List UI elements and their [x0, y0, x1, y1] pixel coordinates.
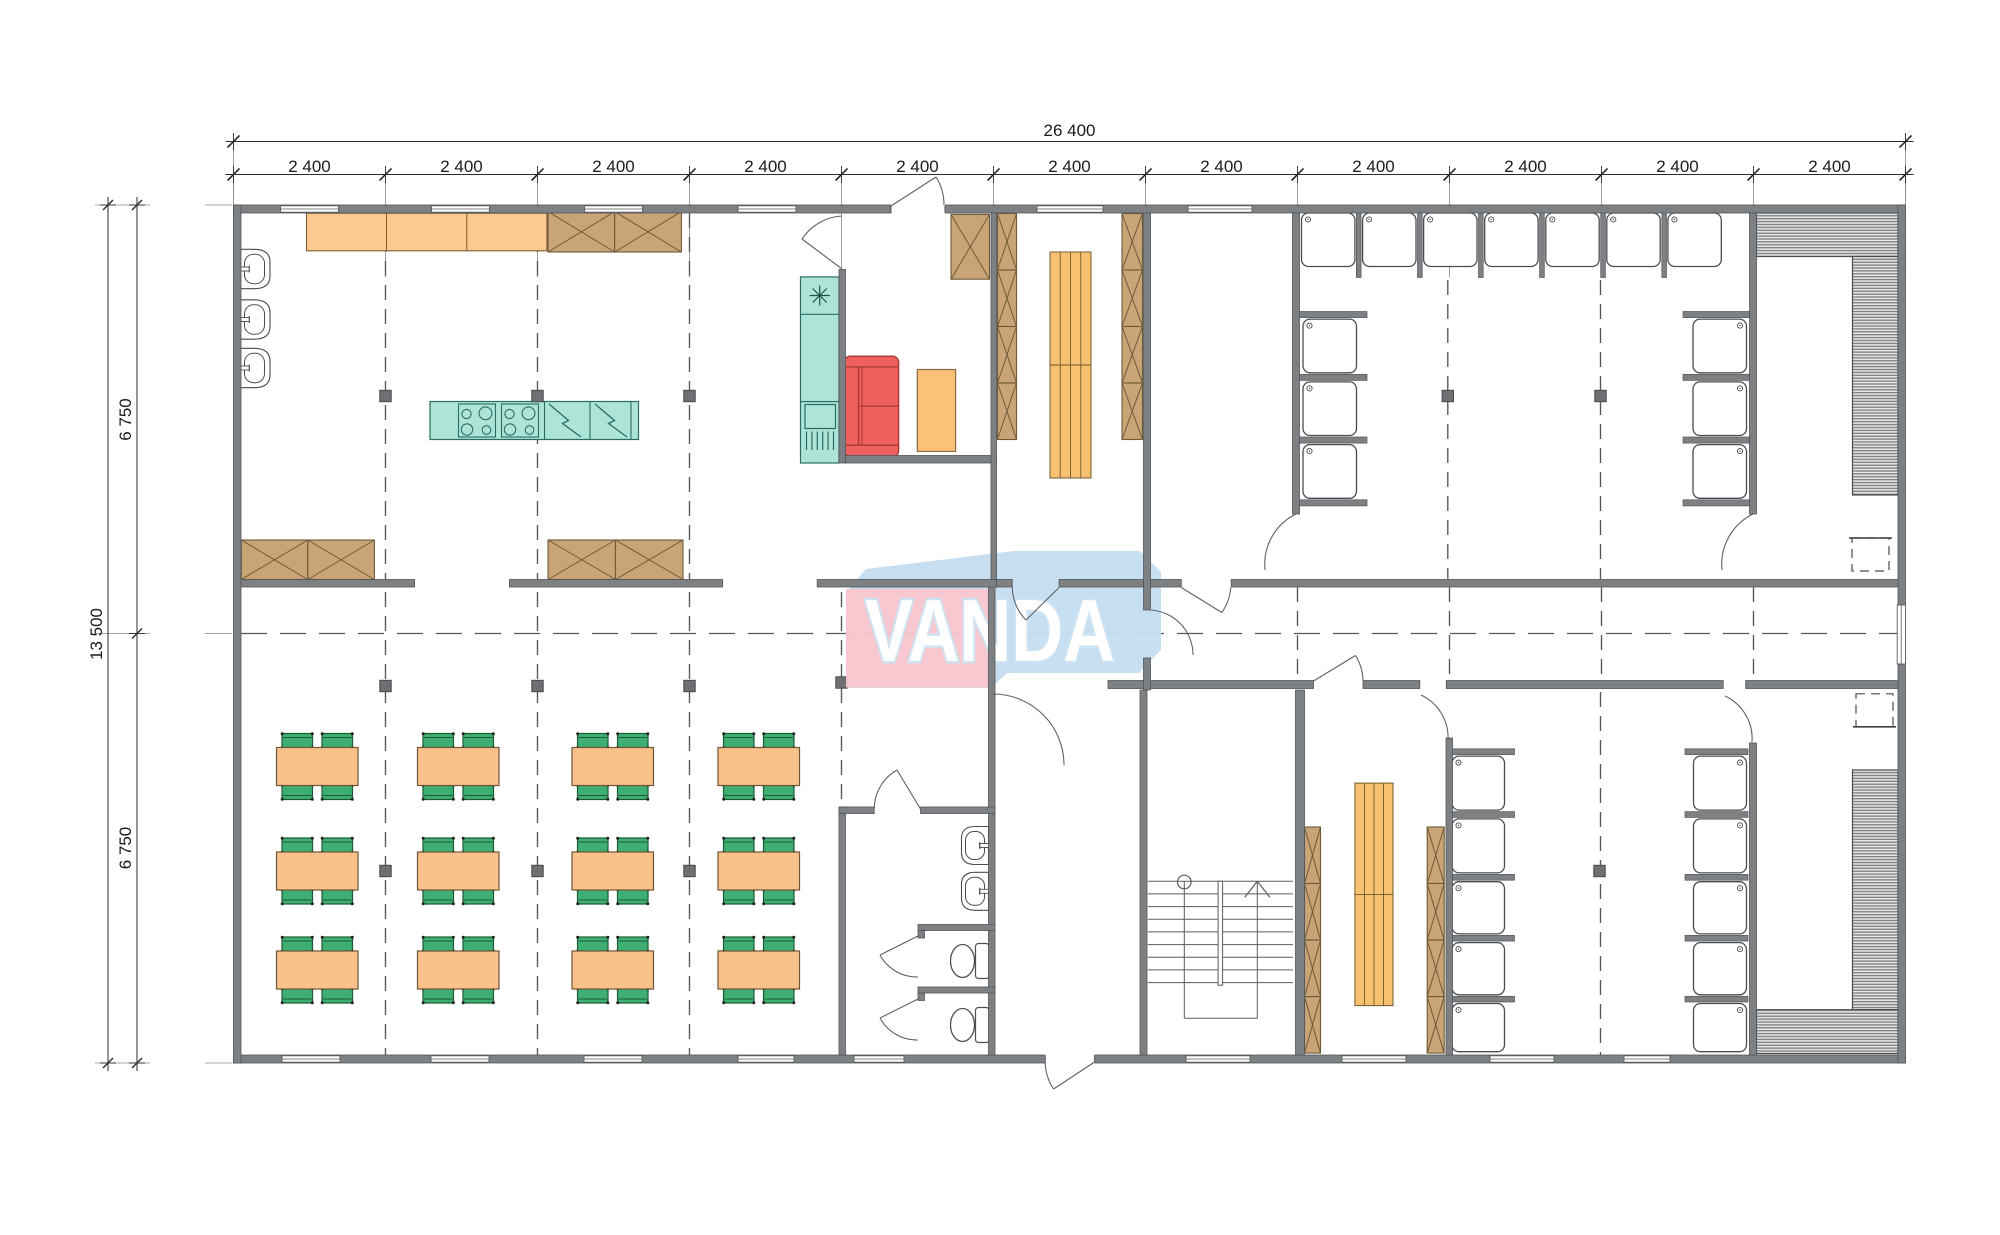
svg-text:2 400: 2 400 [1352, 157, 1395, 176]
svg-text:2 400: 2 400 [896, 157, 939, 176]
svg-text:2 400: 2 400 [1808, 157, 1851, 176]
svg-text:6 750: 6 750 [116, 827, 135, 870]
svg-text:2 400: 2 400 [288, 157, 331, 176]
svg-text:2 400: 2 400 [440, 157, 483, 176]
svg-text:26 400: 26 400 [1044, 121, 1096, 140]
svg-text:2 400: 2 400 [592, 157, 635, 176]
svg-text:2 400: 2 400 [1656, 157, 1699, 176]
svg-text:2 400: 2 400 [1048, 157, 1091, 176]
svg-text:2 400: 2 400 [1200, 157, 1243, 176]
svg-text:2 400: 2 400 [1504, 157, 1547, 176]
svg-text:2 400: 2 400 [744, 157, 787, 176]
svg-text:6 750: 6 750 [116, 398, 135, 441]
svg-text:13 500: 13 500 [87, 608, 106, 660]
